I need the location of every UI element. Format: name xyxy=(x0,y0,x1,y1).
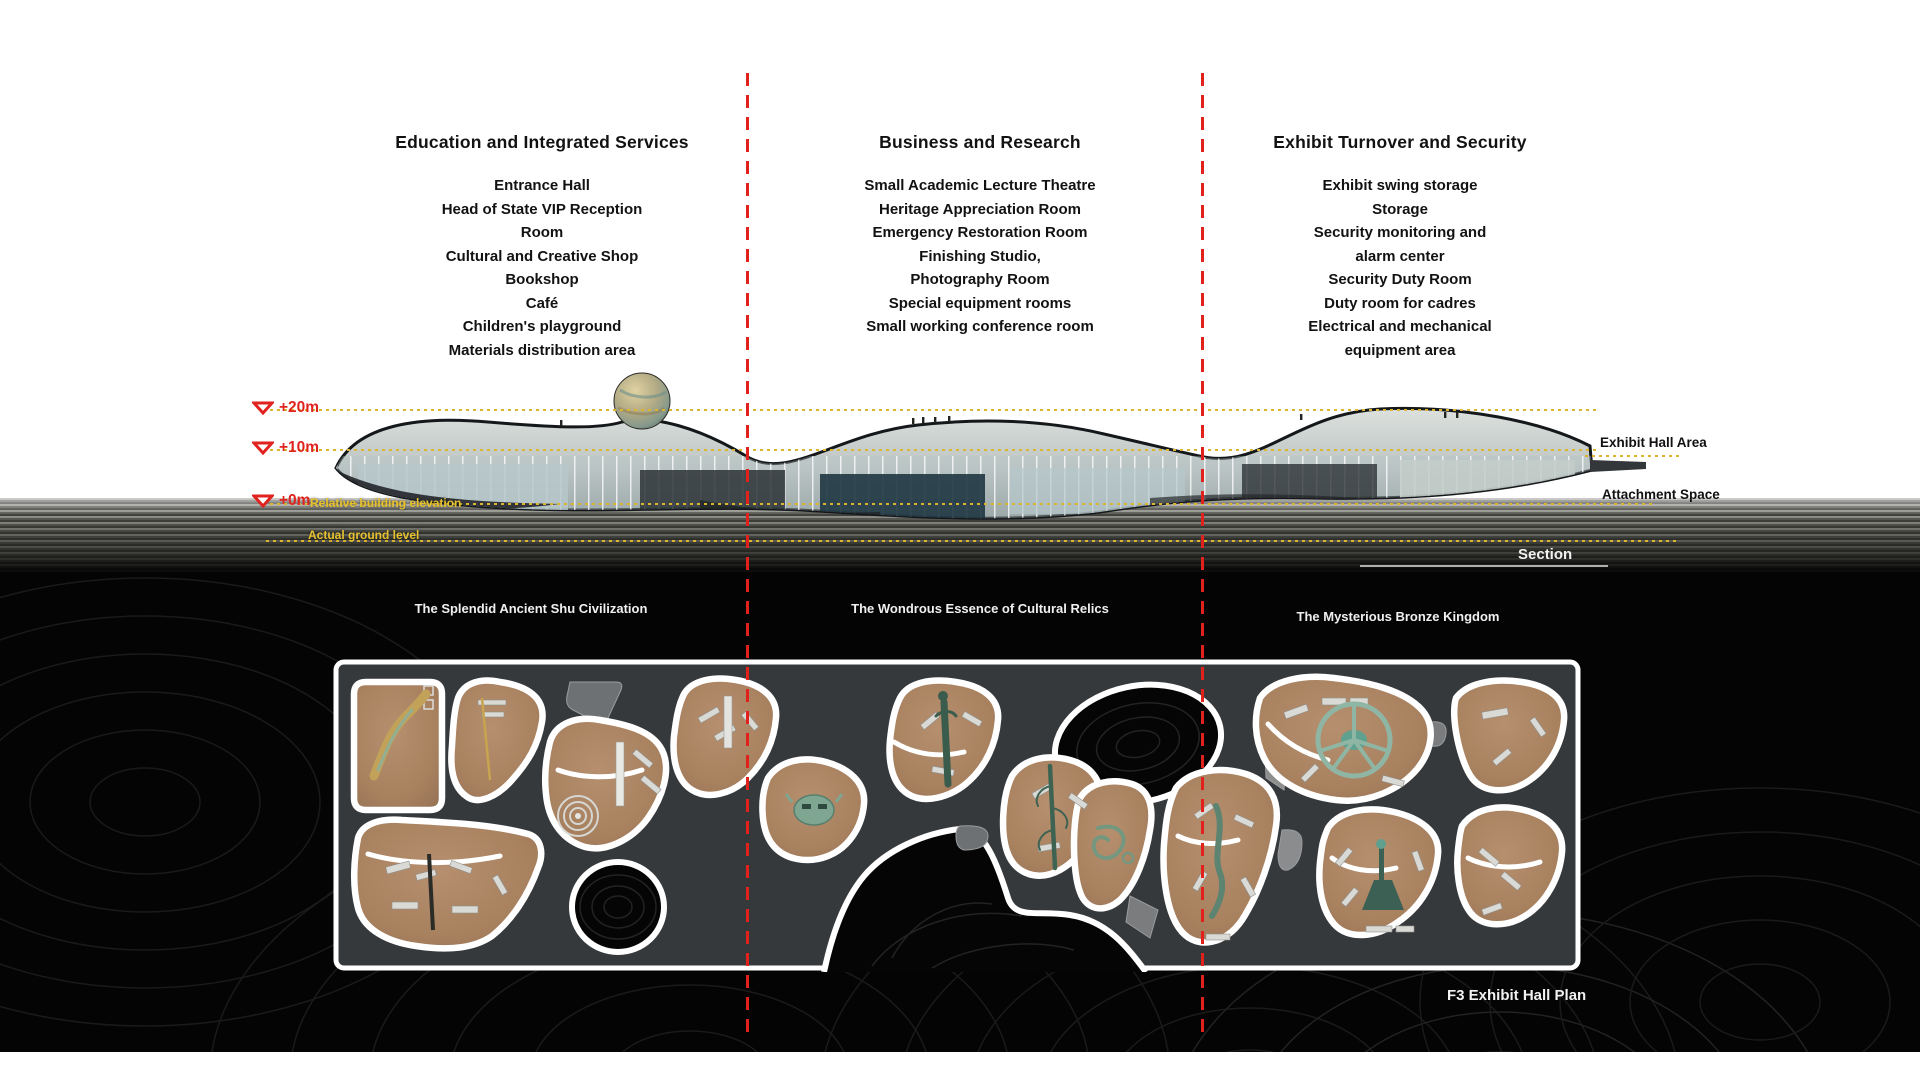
program-line: Security Duty Room xyxy=(1180,268,1620,292)
program-line: Small working conference room xyxy=(770,315,1190,339)
program-line: Electrical and mechanical xyxy=(1180,315,1620,339)
program-line: Duty room for cadres xyxy=(1180,292,1620,316)
column-exhibit-security: Exhibit Turnover and Security Exhibit sw… xyxy=(1180,132,1620,362)
program-line: Bookshop xyxy=(332,268,752,292)
plan-caption: F3 Exhibit Hall Plan xyxy=(1447,987,1586,1004)
program-line: Security monitoring and xyxy=(1180,221,1620,245)
dimension-line-10m xyxy=(270,449,1600,451)
program-line: Emergency Restoration Room xyxy=(770,221,1190,245)
actual-ground-label: Actual ground level xyxy=(308,528,419,542)
dimension-line-exhibit-hall xyxy=(1585,455,1680,457)
elevation-marker-0m: +0m xyxy=(252,492,310,510)
program-line: Room xyxy=(332,221,752,245)
program-line: Storage xyxy=(1180,198,1620,222)
column-business-research: Business and Research Small Academic Lec… xyxy=(770,132,1190,339)
elevation-triangle-icon xyxy=(252,441,274,455)
program-line: Exhibit swing storage xyxy=(1180,174,1620,198)
exhibit-cell xyxy=(354,682,442,810)
zone-label-cultural-relics: The Wondrous Essence of Cultural Relics xyxy=(810,601,1150,616)
elevation-triangle-icon xyxy=(252,494,274,508)
column-education-services: Education and Integrated Services Entran… xyxy=(332,132,752,362)
elevation-label: +20m xyxy=(279,399,319,417)
section-caption-underline xyxy=(1360,565,1608,567)
column-title: Business and Research xyxy=(770,132,1190,153)
right-wing xyxy=(1590,460,1646,472)
elevation-marker-10m: +10m xyxy=(252,439,319,457)
program-line: Materials distribution area xyxy=(332,339,752,363)
program-line: Small Academic Lecture Theatre xyxy=(770,174,1190,198)
program-line: Heritage Appreciation Room xyxy=(770,198,1190,222)
dimension-line-0m xyxy=(270,503,1655,505)
zone-label-shu-civilization: The Splendid Ancient Shu Civilization xyxy=(361,601,701,616)
elevation-triangle-icon xyxy=(252,401,274,415)
globe-sphere xyxy=(614,373,670,429)
program-line: Finishing Studio, xyxy=(770,245,1190,269)
section-caption: Section xyxy=(1518,546,1572,563)
dimension-line-ground xyxy=(266,540,1680,542)
elevation-marker-20m: +20m xyxy=(252,399,319,417)
program-line: Children's playground xyxy=(332,315,752,339)
attachment-space-label: Attachment Space xyxy=(1602,487,1720,502)
elevation-label: +10m xyxy=(279,439,319,457)
relative-elevation-label: Relative building elevation xyxy=(310,496,461,510)
jade-pit-feature xyxy=(558,796,598,836)
dimension-line-20m xyxy=(270,409,1600,411)
zone-divider-line-right xyxy=(1201,73,1204,1035)
program-line: Cultural and Creative Shop xyxy=(332,245,752,269)
program-line: Special equipment rooms xyxy=(770,292,1190,316)
zone-divider-line-left xyxy=(746,73,749,1035)
program-line: alarm center xyxy=(1180,245,1620,269)
architecture-board: { "header_columns": [ { "title": "Educat… xyxy=(0,0,1920,1080)
elevation-label: +0m xyxy=(279,492,310,510)
column-title: Education and Integrated Services xyxy=(332,132,752,153)
zone-label-bronze-kingdom: The Mysterious Bronze Kingdom xyxy=(1228,609,1568,624)
exhibit-hall-area-label: Exhibit Hall Area xyxy=(1600,435,1707,450)
program-line: Photography Room xyxy=(770,268,1190,292)
program-line: Entrance Hall xyxy=(332,174,752,198)
column-title: Exhibit Turnover and Security xyxy=(1180,132,1620,153)
program-line: equipment area xyxy=(1180,339,1620,363)
program-line: Head of State VIP Reception xyxy=(332,198,752,222)
floor-plan-drawing xyxy=(332,658,1582,972)
program-line: Café xyxy=(332,292,752,316)
